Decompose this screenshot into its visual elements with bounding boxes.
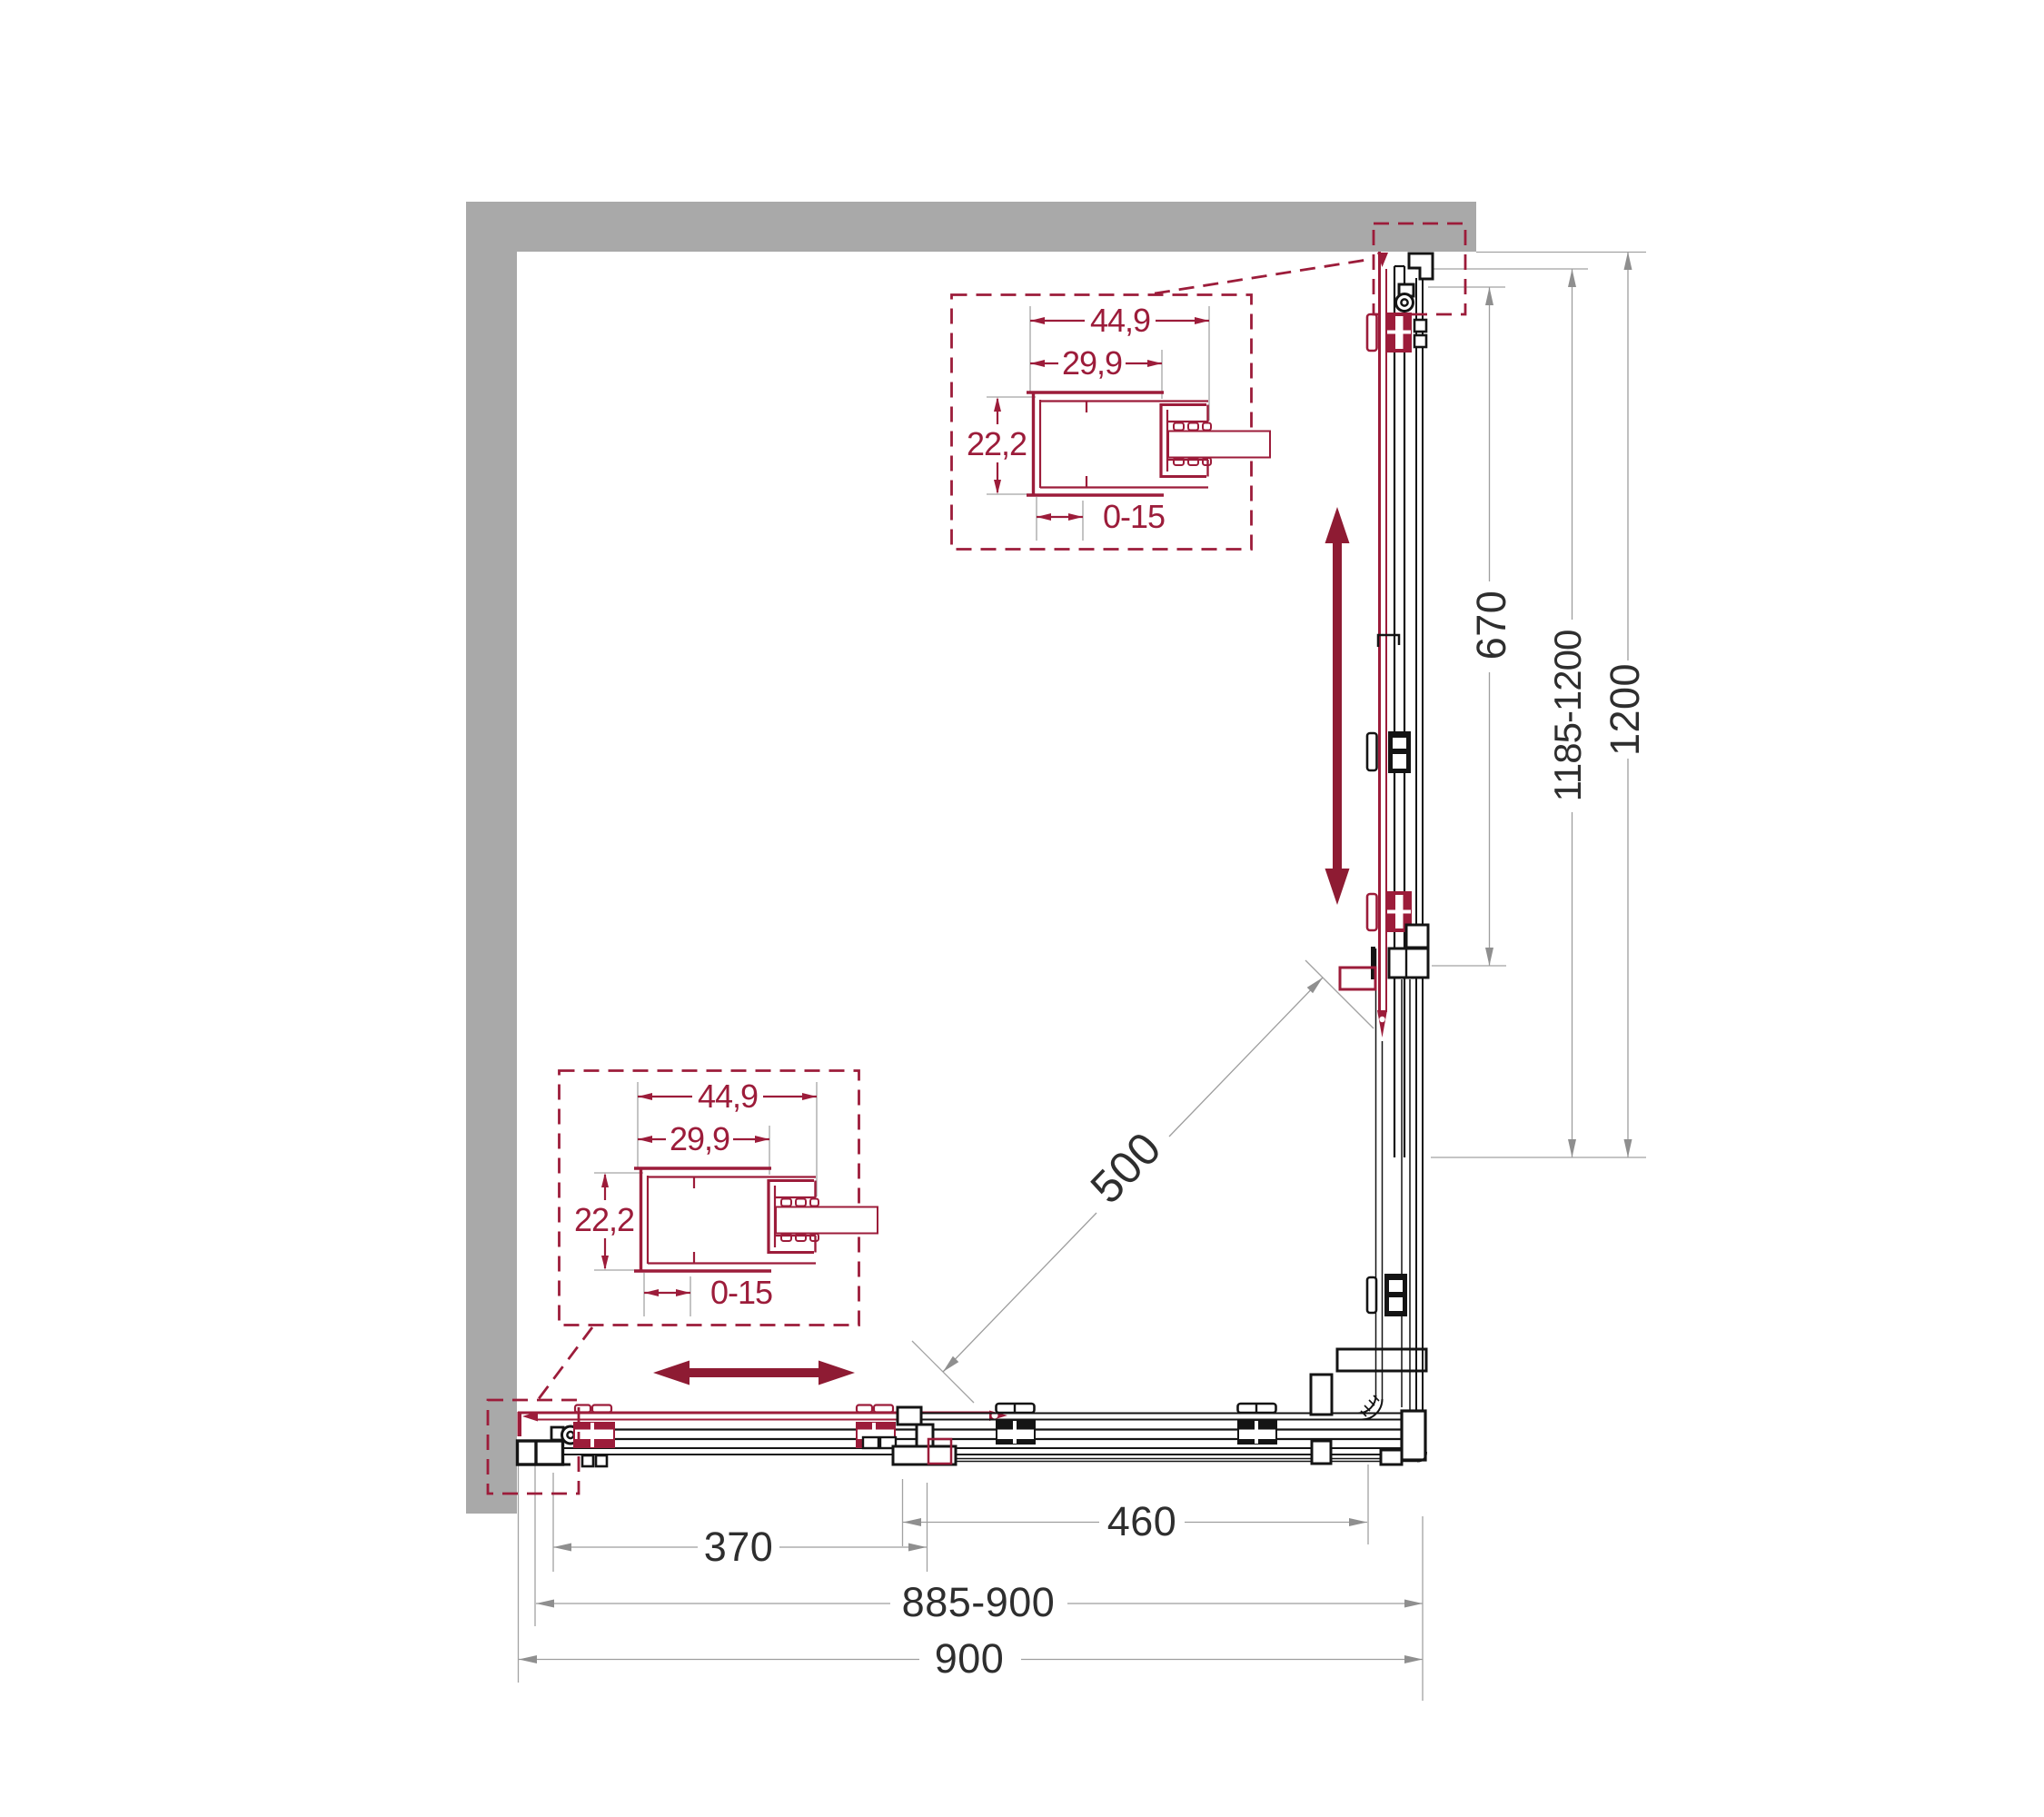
svg-text:900: 900	[935, 1635, 1005, 1682]
svg-text:885-900: 885-900	[902, 1579, 1056, 1625]
svg-text:460: 460	[1107, 1498, 1177, 1544]
svg-text:1185-1200: 1185-1200	[1546, 630, 1589, 802]
svg-text:370: 370	[704, 1524, 774, 1570]
svg-text:1200: 1200	[1602, 663, 1648, 756]
svg-text:670: 670	[1468, 591, 1514, 660]
